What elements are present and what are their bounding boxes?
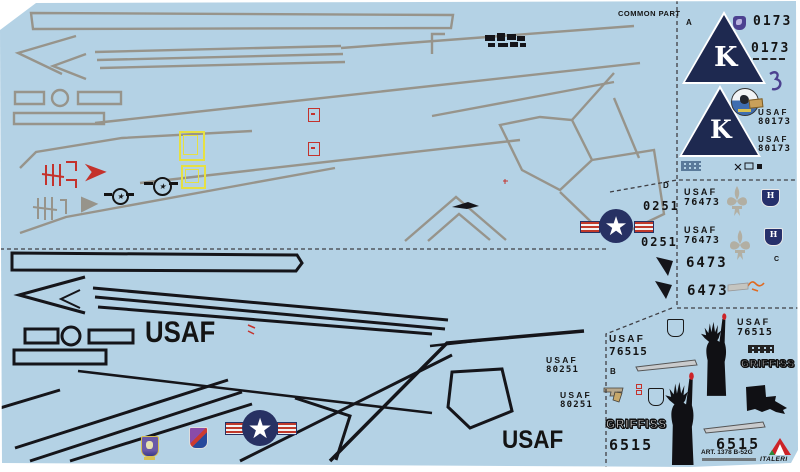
h-letter: H [767, 190, 775, 200]
usaf-76515-decal: USAF 76515 [609, 335, 648, 357]
walkway-circle [52, 90, 68, 106]
usaf-text: USAF [684, 188, 720, 197]
star-icon: ★ [117, 192, 124, 201]
usaf-text: USAF [609, 335, 648, 345]
serial-80251: 80251 [560, 401, 593, 410]
usaf-80173-decal: USAF 80173 [758, 109, 791, 127]
yellow-panel-decal [179, 131, 205, 161]
arrow-glyph-red [88, 166, 104, 179]
wing-panel-line [572, 73, 614, 120]
louisiana-map-decal [746, 385, 787, 414]
walkway-line [97, 54, 343, 60]
tail-line [614, 98, 639, 158]
walkway-chevron [19, 277, 85, 313]
insignia-bar [277, 422, 297, 435]
red-stencil-mark [636, 390, 642, 395]
usaf-large-decal: USAF [145, 318, 215, 348]
italeri-logo-icon [767, 437, 791, 457]
decal-outline-art [0, 0, 800, 472]
usaf-76473-decal: USAF 76473 [684, 188, 720, 208]
usaf-76515-decal: USAF 76515 [737, 318, 773, 338]
common-part-label: COMMON PART [618, 10, 680, 18]
serial-6473: 6473 [686, 256, 728, 270]
griffiss-decal: GRIFFISS [741, 360, 795, 370]
silver-blade [704, 422, 765, 433]
k-letter: K [714, 42, 737, 73]
insignia-bar [634, 221, 654, 233]
red-bracket-decal [308, 142, 320, 156]
walkway-rect [78, 92, 121, 104]
walkway-chevron [18, 36, 76, 74]
wing-inner-outline [448, 369, 512, 428]
walkway-bracket [432, 34, 445, 54]
red-stencil-mark [636, 384, 642, 389]
serial-6473: 6473 [687, 284, 729, 298]
walkway-circle [62, 327, 80, 345]
pistol-decal [604, 388, 623, 402]
h-shield-decal: H [761, 189, 780, 207]
usaf-text: USAF [546, 356, 579, 365]
serial-0251: 0251 [641, 236, 678, 248]
serial-0173: 0173 [753, 15, 792, 28]
decal-sheet: COMMON PART A D C B K K 0173 0173 USAF 8… [0, 0, 800, 472]
walkway-chevron [53, 54, 86, 79]
h-shield-decal: H [764, 228, 783, 246]
wing-badge-decal [189, 427, 208, 449]
usaf-text: USAF [737, 318, 773, 327]
arrow-glyph-gray [82, 198, 96, 211]
ladder-glyph-gray [33, 197, 66, 220]
usaf-large-decal: USAF [502, 428, 563, 453]
stencil-dash-rows [681, 161, 701, 171]
art-number-label: ART. 1378 B-52G [701, 450, 753, 457]
italeri-brand-label: ITALERI [760, 457, 788, 464]
star-icon: ★ [604, 211, 627, 242]
serial-6515: 6515 [609, 438, 653, 453]
fleur-de-lis-decal [730, 230, 750, 260]
statue-of-liberty-decal [665, 372, 693, 465]
usaf-text: USAF [684, 226, 720, 235]
shield-outline-decal [667, 319, 684, 337]
walkway-line [0, 390, 60, 408]
serial-80173: 80173 [758, 145, 791, 154]
walkway-rect [14, 350, 106, 364]
wing-edge-line [20, 131, 252, 168]
star-icon: ★ [159, 182, 166, 191]
walkway-chevron [405, 197, 506, 241]
shield-outline-decal [648, 388, 664, 406]
section-label-b: B [610, 368, 616, 376]
red-squiggle [248, 325, 255, 334]
serial-0173: 0173 [751, 42, 790, 55]
silver-blade [636, 360, 697, 371]
red-bracket-decal [308, 108, 320, 122]
nose-art-squiggle [748, 282, 764, 291]
star-icon: ★ [247, 412, 272, 445]
serial-80173: 80173 [758, 118, 791, 127]
section-label-d: D [663, 182, 669, 190]
gray-walkway-outlines [14, 13, 664, 241]
walkway-rect [31, 13, 453, 29]
insignia-bar [580, 221, 600, 233]
serial-0251: 0251 [643, 200, 680, 212]
sac-badge-decal [141, 436, 159, 457]
usaf-text: USAF [758, 109, 791, 117]
underline-dashes [753, 58, 785, 60]
fine-print-line [702, 458, 756, 461]
h-letter: H [770, 229, 778, 239]
fuselage-line [432, 82, 614, 116]
serial-76515: 76515 [737, 328, 773, 338]
silver-blade-decals [636, 283, 765, 433]
red-cross-mark [503, 179, 508, 184]
serial-76473: 76473 [684, 198, 720, 208]
walkway-line [30, 392, 242, 461]
usaf-80251-decal: USAF 80251 [546, 356, 579, 375]
usaf-76473-decal: USAF 76473 [684, 226, 720, 246]
walkway-tip [655, 281, 672, 299]
usaf-text: USAF [758, 136, 791, 144]
insignia-star-disc: ★ [242, 410, 278, 446]
serial-76473: 76473 [684, 236, 720, 246]
wing-inner-line [430, 338, 502, 346]
walkway-rect [15, 92, 44, 104]
usaf-80173-decal: USAF 80173 [758, 136, 791, 154]
wing-panel-outline [500, 117, 592, 190]
k-letter: K [710, 115, 732, 144]
walkway-rect [25, 329, 58, 343]
aircraft-silhouette [452, 202, 479, 209]
purple-ribbon-glyph [770, 72, 780, 89]
walkway-line [100, 62, 345, 68]
walkway-rect [12, 253, 302, 271]
stencil-rows [748, 345, 774, 353]
usaf-80251-decal: USAF 80251 [560, 391, 593, 410]
bomb-wing-emblem [733, 16, 746, 30]
section-label-c: C [774, 256, 779, 263]
statue-of-liberty-decal [701, 313, 726, 396]
walkway-chevron [61, 290, 80, 308]
walkway-line [95, 46, 341, 52]
griffiss-decal: GRIFFISS [606, 420, 667, 432]
walkway-rect [14, 113, 104, 124]
tiny-stencil-glyphs [735, 163, 762, 170]
silver-blade-small [728, 283, 748, 291]
ladder-glyph-red [42, 162, 76, 188]
walkway-rect [89, 330, 133, 343]
usaf-text: USAF [560, 391, 593, 400]
serial-76515: 76515 [609, 346, 648, 357]
insignia-star-disc: ★ [599, 209, 633, 243]
yellow-panel-decal [181, 165, 206, 189]
serial-80251: 80251 [546, 366, 579, 375]
fleur-de-lis-decal [727, 186, 747, 216]
walkway-tip [656, 257, 673, 276]
